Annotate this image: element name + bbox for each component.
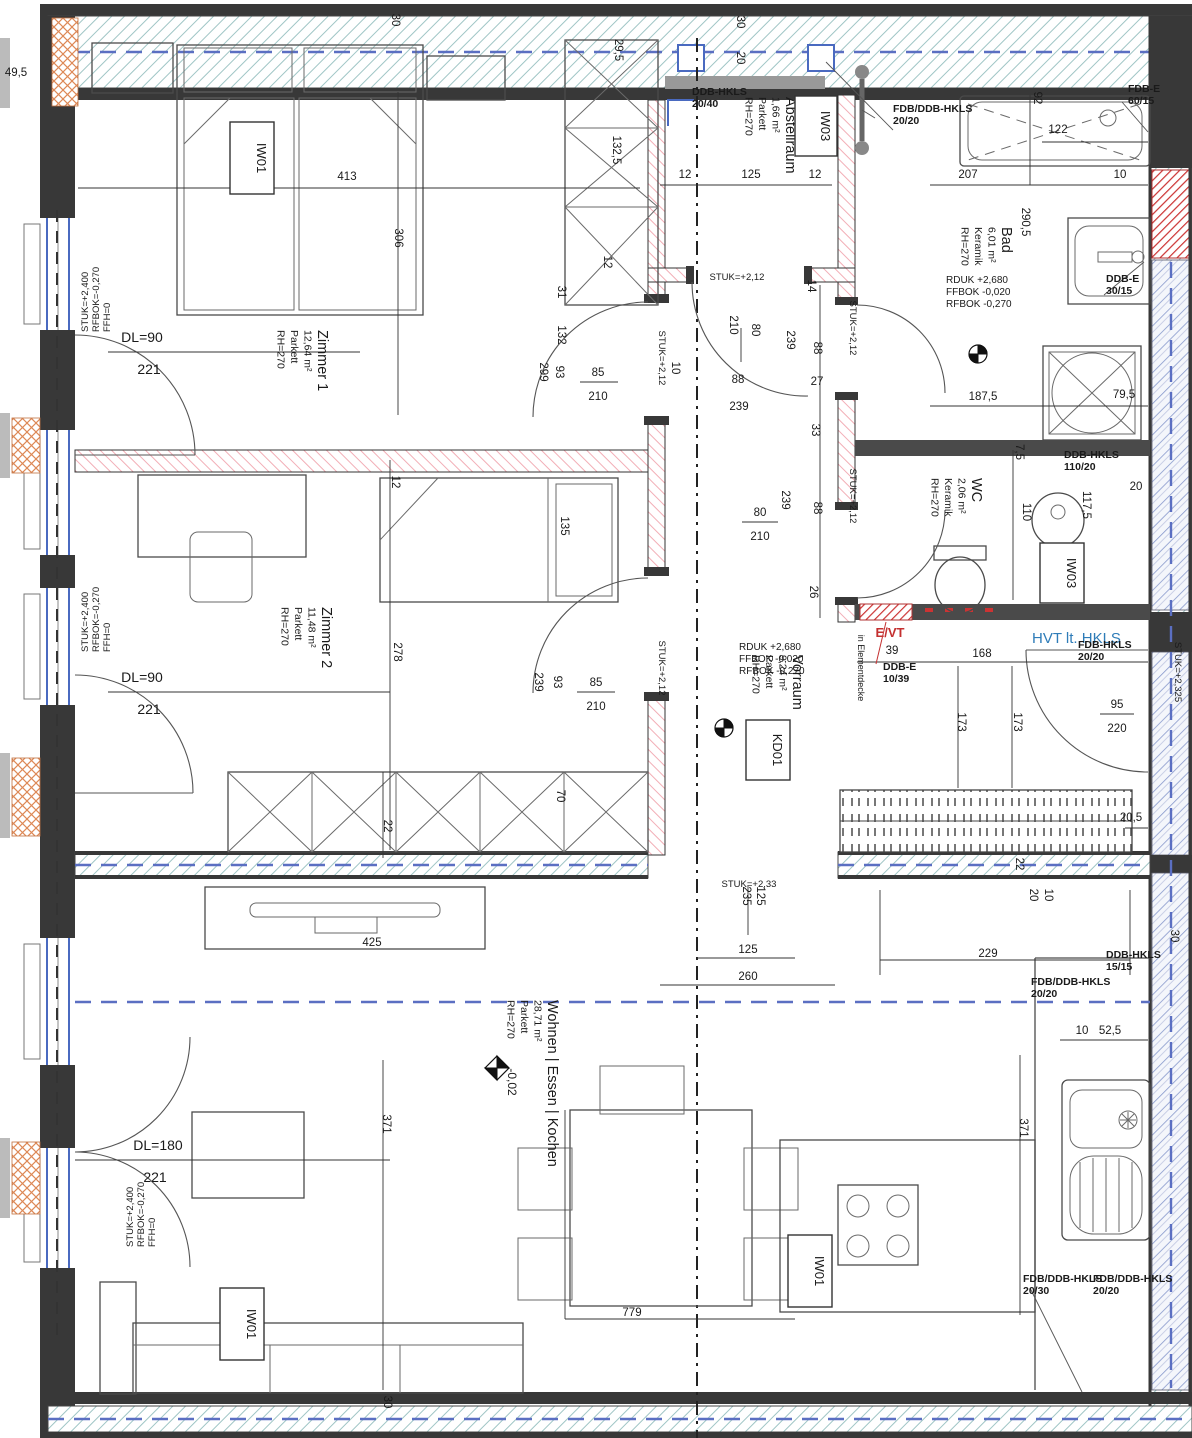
dim-label: 299 (537, 362, 549, 381)
dim-label: 168 (972, 648, 991, 660)
dim-label: 79,5 (1113, 389, 1135, 401)
dim-label: 30 (389, 14, 401, 27)
dim-label: 132 (555, 325, 567, 344)
dim-label: 20 (1027, 889, 1039, 902)
hkls-note: DDB-HKLS (692, 86, 747, 98)
dim-label: 260 (738, 971, 757, 983)
dim-label: 7,5 (1013, 444, 1025, 460)
dim-label: 425 (362, 937, 381, 949)
vent-box (678, 45, 704, 71)
dim-label: 20 (1130, 481, 1143, 493)
room-label: Parkett (756, 97, 768, 130)
dim-label: DL=90 (121, 329, 163, 345)
dim-label: 14 (805, 280, 817, 293)
room-label: Zimmer 1 (314, 330, 330, 391)
datum-block: STUK=+2,400 (125, 1187, 136, 1247)
dim-label: 413 (337, 171, 356, 183)
component-label: IW01 (244, 1309, 259, 1339)
dim-label: 210 (750, 531, 769, 543)
room-label: 12,64 m² (302, 330, 314, 372)
toilet (934, 546, 986, 613)
kitchen (780, 958, 1150, 1390)
hkls-note: 20/20 (893, 115, 919, 127)
room-label: Parkett (292, 607, 304, 640)
labels-layer: 49,530302029,5132,51231132413306DL=90221… (5, 14, 1183, 1409)
elementdecke-note: in Elementdecke (856, 635, 866, 702)
room-label: 11,48 m² (306, 607, 318, 648)
evt-box (860, 604, 912, 620)
dim-label: 239 (532, 672, 544, 691)
dim-label: 39 (886, 645, 899, 657)
dim-label: 88 (732, 374, 745, 386)
bed-single (380, 478, 618, 602)
dim-label: 779 (622, 1307, 641, 1319)
dim-label: 173 (955, 712, 967, 731)
level-block: FFBOK -0,020 (739, 654, 804, 665)
room-label: 2,06 m² (956, 478, 968, 514)
hkls-note: FDB-HKLS (1078, 639, 1132, 651)
shaft-hatch (1152, 170, 1190, 258)
window-left-3 (24, 588, 75, 705)
hkls-note: 30/15 (1106, 285, 1132, 297)
component-label: IW03 (818, 111, 833, 141)
dim-label: 10 (1076, 1025, 1089, 1037)
hkls-note: FDB/DDB-HKLS (1023, 1273, 1102, 1285)
hkls-note: FDB-E (1128, 83, 1160, 95)
room-label: RH=270 (505, 1000, 517, 1039)
hkls-note: FDB/DDB-HKLS (1031, 976, 1110, 988)
room-label: Bad (998, 227, 1014, 253)
dim-label: STUK=+2,12 (656, 331, 667, 386)
room-label: Parkett (518, 1000, 530, 1033)
dim-label: 30 (1168, 930, 1180, 943)
dim-label: 110 (1020, 503, 1032, 521)
datum-block: RFBOK=-0,270 (91, 587, 102, 652)
dim-label: 239 (779, 490, 791, 509)
room-label: 6,01 m² (986, 227, 998, 263)
level-block: RFBOK -0,270 (946, 299, 1012, 310)
wardrobe-row (228, 772, 648, 852)
hkls-note: 20/20 (1078, 651, 1104, 663)
dim-label: 22 (381, 820, 393, 833)
window-left-4 (24, 938, 75, 1065)
existing-hatch (12, 758, 40, 836)
floor-plan-page: 49,530302029,5132,51231132413306DL=90221… (0, 0, 1192, 1438)
dim-label: 239 (784, 330, 796, 349)
dim-label: STUK=+2,325 (1172, 642, 1183, 702)
datum-block: FFH=0 (147, 1218, 158, 1247)
dim-label: STUK=+2,12 (656, 641, 667, 696)
dim-label: 290,5 (1019, 208, 1031, 237)
dim-label: 278 (391, 642, 403, 661)
dim-label: STUK=+2,12 (710, 272, 765, 283)
room-label: RH=270 (275, 330, 287, 369)
component-label: IW03 (1064, 558, 1079, 588)
dim-label: 30 (381, 1396, 393, 1409)
dim-label: STUK=+2,12 (847, 469, 858, 524)
level-block: RFBOK -0,270 (739, 666, 805, 677)
existing-hatch (52, 18, 78, 106)
desk (138, 475, 306, 602)
door-zimmer1-balcony (75, 335, 195, 455)
dim-label: 80 (754, 507, 767, 519)
level-block: RDUK +2,680 (739, 642, 801, 653)
dim-label: 95 (1111, 699, 1124, 711)
hkls-note: 60/15 (1128, 95, 1154, 107)
dim-label: 10 (669, 362, 681, 375)
sofa (100, 1282, 523, 1394)
window-left-1 (24, 218, 75, 330)
dim-label: 88 (811, 342, 823, 355)
dim-label: 371 (380, 1114, 392, 1133)
floor-plan-svg: 49,530302029,5132,51231132413306DL=90221… (0, 0, 1192, 1438)
datum-block: FFH=0 (102, 623, 113, 652)
dim-label: DL=90 (121, 669, 163, 685)
dim-label: 30 (734, 16, 746, 29)
dim-label: 26 (807, 586, 819, 599)
room-label: Zimmer 2 (318, 607, 334, 668)
door-bad (857, 305, 945, 393)
dim-label: 49,5 (5, 67, 27, 79)
dim-label: 187,5 (969, 391, 998, 403)
dim-label: 125 (738, 944, 757, 956)
component-label: IW01 (812, 1256, 827, 1286)
dim-label: 135 (558, 516, 570, 535)
dim-label: 12 (601, 256, 613, 269)
dim-label: 93 (551, 676, 563, 689)
dim-label: 27 (811, 376, 824, 388)
dim-label: 173 (1011, 712, 1023, 731)
level-value: -0,02 (505, 1068, 519, 1096)
level-marker-circle (969, 345, 987, 363)
dim-label: 221 (137, 701, 161, 717)
dim-label: 239 (729, 401, 748, 413)
room-label: RH=270 (959, 227, 971, 266)
hkls-note: DDB-HKLS (1064, 449, 1119, 461)
evt-label: E/VT (876, 625, 905, 640)
level-block: FFBOK -0,020 (946, 287, 1011, 298)
sideboard (205, 887, 485, 949)
dim-label: 132,5 (610, 136, 622, 165)
room-label: RH=270 (929, 478, 941, 517)
dim-label: 229 (978, 948, 997, 960)
datum-block: STUK=+2,400 (80, 272, 91, 332)
datum-block: STUK=+2,400 (80, 592, 91, 652)
hkls-note: FDB/DDB-HKLS (1093, 1273, 1172, 1285)
dim-label: 20,5 (1120, 812, 1142, 824)
hkls-note: DDB-HKLS (1106, 949, 1161, 961)
hkls-note: 20/20 (1031, 988, 1057, 1000)
vent-box (808, 45, 834, 71)
hkls-note: 20/40 (692, 98, 718, 110)
existing-hatch (12, 1142, 40, 1214)
door-swings (75, 282, 1148, 1267)
coat-rack (840, 790, 1132, 852)
dim-label: DL=180 (133, 1137, 183, 1153)
room-label: Keramik (942, 478, 954, 517)
dim-label: 210 (586, 701, 605, 713)
dim-label: 125 (741, 169, 760, 181)
dim-label: 80 (749, 324, 761, 337)
dim-label: 12 (389, 476, 401, 489)
dim-label: 22 (1013, 858, 1025, 871)
level-block: RDUK +2,680 (946, 275, 1008, 286)
hkls-note: 10/39 (883, 673, 909, 685)
dim-label: 29,5 (612, 39, 624, 61)
room-label: 28,71 m² (532, 1000, 544, 1042)
dim-label: 10 (1042, 889, 1054, 902)
datum-block: RFBOK=-0,270 (91, 267, 102, 332)
dim-label: 371 (1017, 1118, 1029, 1137)
hkls-note: 20/30 (1023, 1285, 1049, 1297)
dim-label: 33 (809, 424, 821, 437)
door-entrance (1026, 650, 1148, 772)
wc-basin (1032, 493, 1084, 547)
room-label: RH=270 (279, 607, 291, 646)
dim-label: 31 (555, 286, 567, 299)
hkls-note: DDB-E (1106, 273, 1139, 285)
dim-label: 235 (740, 886, 752, 905)
door-wc (857, 510, 945, 598)
dim-label: 92 (1031, 92, 1043, 105)
door-zimmer2-balcony (75, 675, 193, 793)
datum-block: RFBOK=-0,270 (136, 1182, 147, 1247)
dim-label: 125 (754, 886, 766, 905)
dim-label: 210 (727, 315, 739, 334)
dim-label: 117,5 (1080, 491, 1092, 519)
dim-label: 220 (1107, 723, 1126, 735)
door-terrace-leaf1 (75, 1037, 190, 1152)
hkls-note: FDB/DDB-HKLS (893, 103, 972, 115)
dim-label: STUK=+2,12 (847, 301, 858, 356)
hkls-note: 15/15 (1106, 961, 1132, 973)
dim-label: 52,5 (1099, 1025, 1121, 1037)
dim-label: 85 (590, 677, 603, 689)
dim-label: 12 (679, 169, 692, 181)
dim-label: 88 (811, 502, 823, 515)
component-label: KD01 (770, 734, 785, 767)
dim-label: 12 (809, 169, 822, 181)
hkls-note: DDB-E (883, 661, 916, 673)
room-label: WC (968, 478, 984, 502)
dim-label: 221 (137, 361, 161, 377)
dim-label: 10 (1114, 169, 1127, 181)
room-label: RH=270 (743, 97, 755, 136)
side-table (192, 1112, 304, 1198)
dim-label: 122 (1048, 124, 1067, 136)
hkls-note: 110/20 (1064, 461, 1096, 473)
door-zimmer2 (533, 578, 648, 693)
hkls-note: 20/20 (1093, 1285, 1119, 1297)
dim-label: 210 (588, 391, 607, 403)
dim-label: 93 (553, 366, 565, 379)
existing-hatch (12, 418, 40, 473)
dim-label: 20 (734, 52, 746, 65)
room-label: Wohnen | Essen | Kochen (544, 1000, 560, 1167)
level-marker-circle (715, 719, 733, 737)
dim-label: 306 (392, 228, 404, 247)
room-label: 1,66 m² (770, 97, 782, 133)
component-label: IW01 (254, 143, 269, 173)
dim-label: 207 (958, 169, 977, 181)
dim-label: 70 (554, 790, 566, 803)
dim-label: 85 (592, 367, 605, 379)
room-label: Parkett (288, 330, 300, 363)
datum-block: FFH=0 (102, 303, 113, 332)
room-label: Keramik (972, 227, 984, 266)
